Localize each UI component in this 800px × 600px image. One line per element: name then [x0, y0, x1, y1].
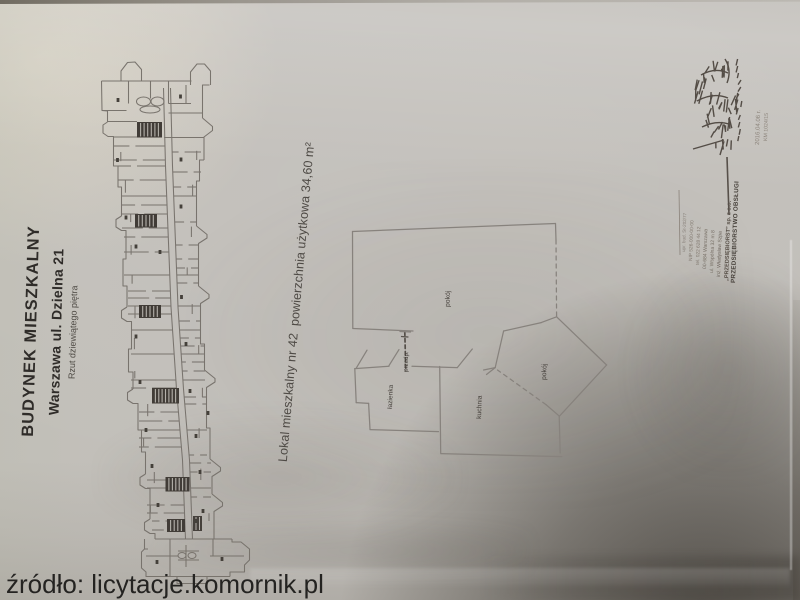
svg-text:łazienka: łazienka	[387, 384, 395, 409]
svg-text:KM 1024/15: KM 1024/15	[763, 113, 770, 141]
svg-text:2016.04.06 r.: 2016.04.06 r.	[755, 110, 762, 146]
svg-text:00-684 Warszawa: 00-684 Warszawa	[702, 229, 709, 270]
svg-text:NIP 526-000-00-00: NIP 526-000-00-00	[688, 220, 695, 261]
svg-text:przedp.: przedp.	[403, 351, 411, 372]
svg-text:tel. 022 628 44 12: tel. 022 628 44 12	[695, 226, 702, 265]
svg-text:upr. bud. St-202/77: upr. bud. St-202/77	[681, 212, 687, 252]
svg-text:kuchnia: kuchnia	[476, 395, 484, 419]
svg-text:pokój: pokój	[541, 363, 549, 380]
svg-text:ul. Wspólna 32 m 8: ul. Wspólna 32 m 8	[709, 230, 716, 273]
svg-text:pokój: pokój	[445, 290, 453, 307]
svg-text:inż. Władysław Szpa: inż. Władysław Szpa	[716, 231, 724, 277]
